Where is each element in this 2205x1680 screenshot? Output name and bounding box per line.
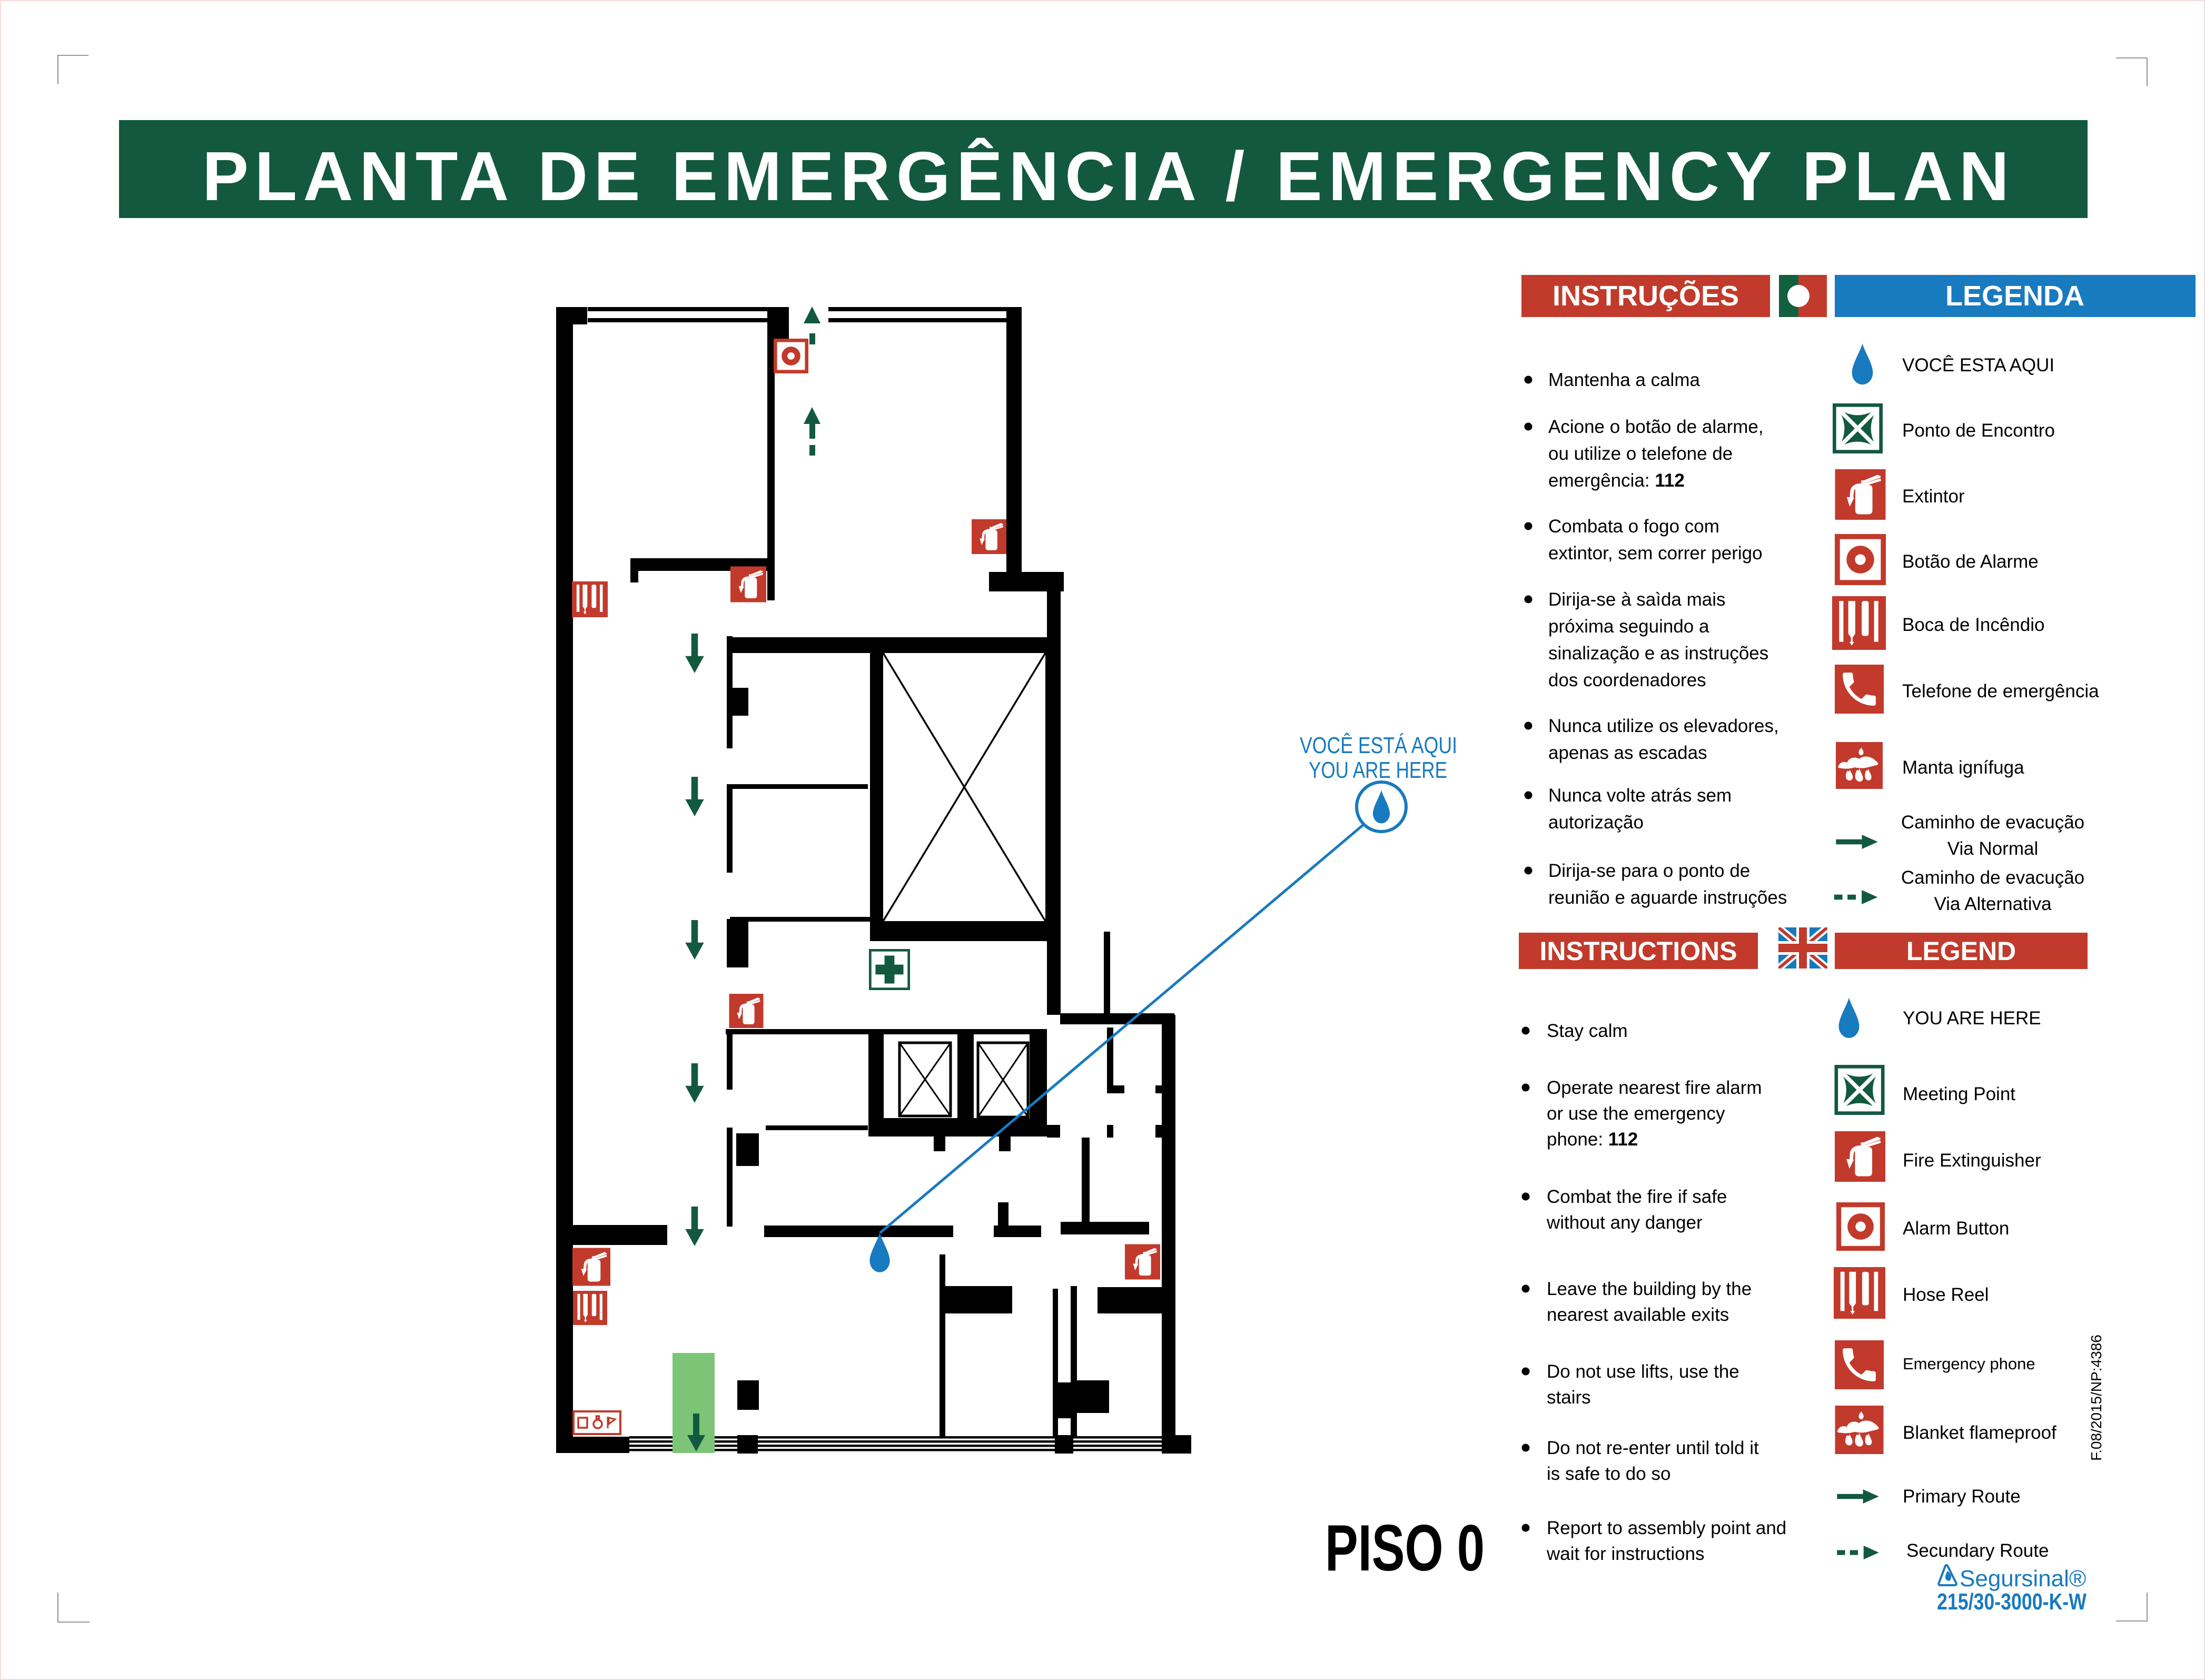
svg-text:sinalização e as instruções: sinalização e as instruções <box>1548 643 1768 664</box>
svg-text:phone: 112: phone: 112 <box>1547 1129 1638 1150</box>
svg-text:is safe to do so: is safe to do so <box>1547 1464 1670 1484</box>
svg-text:Caminho de evacução: Caminho de evacução <box>1901 812 2084 833</box>
svg-text:Meeting Point: Meeting Point <box>1903 1084 2015 1104</box>
svg-text:Nunca utilize os elevadores,: Nunca utilize os elevadores, <box>1548 716 1779 736</box>
svg-text:PLANTA DE EMERGÊNCIA / EMERGEN: PLANTA DE EMERGÊNCIA / EMERGENCY PLAN <box>202 137 2009 215</box>
svg-text:YOU ARE HERE: YOU ARE HERE <box>1903 1008 2041 1029</box>
svg-text:without any danger: without any danger <box>1546 1212 1703 1233</box>
svg-text:Do not re-enter until told it: Do not re-enter until told it <box>1547 1438 1759 1458</box>
svg-text:Combat the fire if safe: Combat the fire if safe <box>1547 1187 1727 1207</box>
svg-text:próxima seguindo a: próxima seguindo a <box>1548 616 1709 637</box>
svg-text:Segursinal®: Segursinal® <box>1960 1566 2086 1592</box>
svg-text:Stay calm: Stay calm <box>1547 1021 1628 1041</box>
svg-text:Operate nearest fire alarm: Operate nearest fire alarm <box>1547 1078 1762 1098</box>
svg-text:LEGEND: LEGEND <box>1906 936 2016 966</box>
svg-text:Blanket flameproof: Blanket flameproof <box>1903 1422 2056 1443</box>
svg-text:dos coordenadores: dos coordenadores <box>1548 670 1706 690</box>
svg-text:extintor, sem correr perigo: extintor, sem correr perigo <box>1548 543 1763 564</box>
svg-text:Via Normal: Via Normal <box>1947 838 2038 859</box>
svg-text:Ponto de Encontro: Ponto de Encontro <box>1902 420 2055 441</box>
svg-text:215/30-3000-K-W: 215/30-3000-K-W <box>1937 1589 2087 1615</box>
svg-text:Do not use lifts, use the: Do not use lifts, use the <box>1547 1361 1739 1382</box>
svg-text:Telefone de emergência: Telefone de emergência <box>1902 681 2099 701</box>
svg-text:INSTRUCTIONS: INSTRUCTIONS <box>1540 936 1737 966</box>
svg-text:PISO 0: PISO 0 <box>1325 1512 1485 1585</box>
svg-text:LEGENDA: LEGENDA <box>1945 280 2084 312</box>
svg-text:reunião e aguarde instruções: reunião e aguarde instruções <box>1548 887 1787 908</box>
svg-text:F.08/2015/NP:4386: F.08/2015/NP:4386 <box>2088 1335 2104 1461</box>
svg-text:apenas as escadas: apenas as escadas <box>1548 743 1707 763</box>
svg-text:Boca de Incêndio: Boca de Incêndio <box>1902 615 2044 635</box>
svg-text:Mantenha a calma: Mantenha a calma <box>1548 370 1700 390</box>
svg-text:Botão de Alarme: Botão de Alarme <box>1902 551 2039 572</box>
svg-text:Report to assembly point and: Report to assembly point and <box>1547 1518 1786 1538</box>
svg-text:emergência: 112: emergência: 112 <box>1548 470 1685 491</box>
svg-text:Emergency phone: Emergency phone <box>1903 1355 2035 1373</box>
svg-text:Primary Route: Primary Route <box>1903 1486 2021 1507</box>
svg-text:Dirija-se à saìda mais: Dirija-se à saìda mais <box>1548 589 1726 610</box>
svg-text:Manta ignífuga: Manta ignífuga <box>1902 757 2024 778</box>
svg-text:YOU ARE HERE: YOU ARE HERE <box>1309 757 1447 783</box>
svg-text:wait for instructions: wait for instructions <box>1546 1544 1705 1564</box>
svg-text:Dirija-se para o ponto de: Dirija-se para o ponto de <box>1548 861 1750 881</box>
svg-text:Caminho de evacução: Caminho de evacução <box>1901 867 2084 888</box>
svg-text:stairs: stairs <box>1547 1387 1591 1408</box>
svg-text:autorização: autorização <box>1548 812 1644 833</box>
svg-text:Via Alternativa: Via Alternativa <box>1934 894 2052 914</box>
svg-text:Acione o botão de alarme,: Acione o botão de alarme, <box>1548 417 1764 437</box>
svg-text:Secundary Route: Secundary Route <box>1906 1540 2049 1561</box>
svg-text:VOCÊ ESTA AQUI: VOCÊ ESTA AQUI <box>1902 355 2054 375</box>
svg-text:Fire Extinguisher: Fire Extinguisher <box>1903 1150 2041 1171</box>
svg-text:nearest available exits: nearest available exits <box>1547 1305 1729 1325</box>
svg-text:Combata o fogo com: Combata o fogo com <box>1548 516 1719 537</box>
svg-text:Nunca volte atrás sem: Nunca volte atrás sem <box>1548 785 1732 806</box>
svg-text:INSTRUÇÕES: INSTRUÇÕES <box>1553 280 1739 312</box>
svg-text:Leave the building by the: Leave the building by the <box>1547 1279 1752 1299</box>
svg-text:VOCÊ ESTÁ AQUI: VOCÊ ESTÁ AQUI <box>1300 733 1457 758</box>
svg-text:ou utilize o telefone de: ou utilize o telefone de <box>1548 443 1733 464</box>
svg-text:Hose Reel: Hose Reel <box>1903 1284 1989 1305</box>
svg-text:or use the emergency: or use the emergency <box>1547 1103 1725 1124</box>
svg-text:Extintor: Extintor <box>1902 486 1965 507</box>
svg-text:Alarm Button: Alarm Button <box>1903 1218 2009 1239</box>
